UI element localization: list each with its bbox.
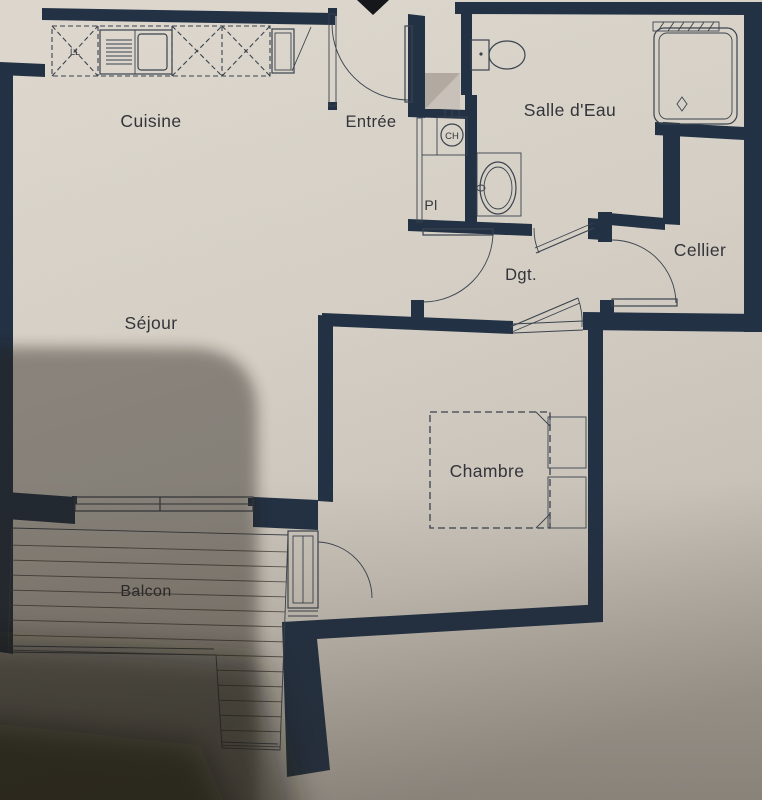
film-grain bbox=[0, 0, 762, 800]
floorplan-photo: LL CH Pl bbox=[0, 0, 762, 800]
floorplan-drawing: LL CH Pl bbox=[0, 0, 762, 800]
photo-lighting bbox=[0, 0, 762, 800]
